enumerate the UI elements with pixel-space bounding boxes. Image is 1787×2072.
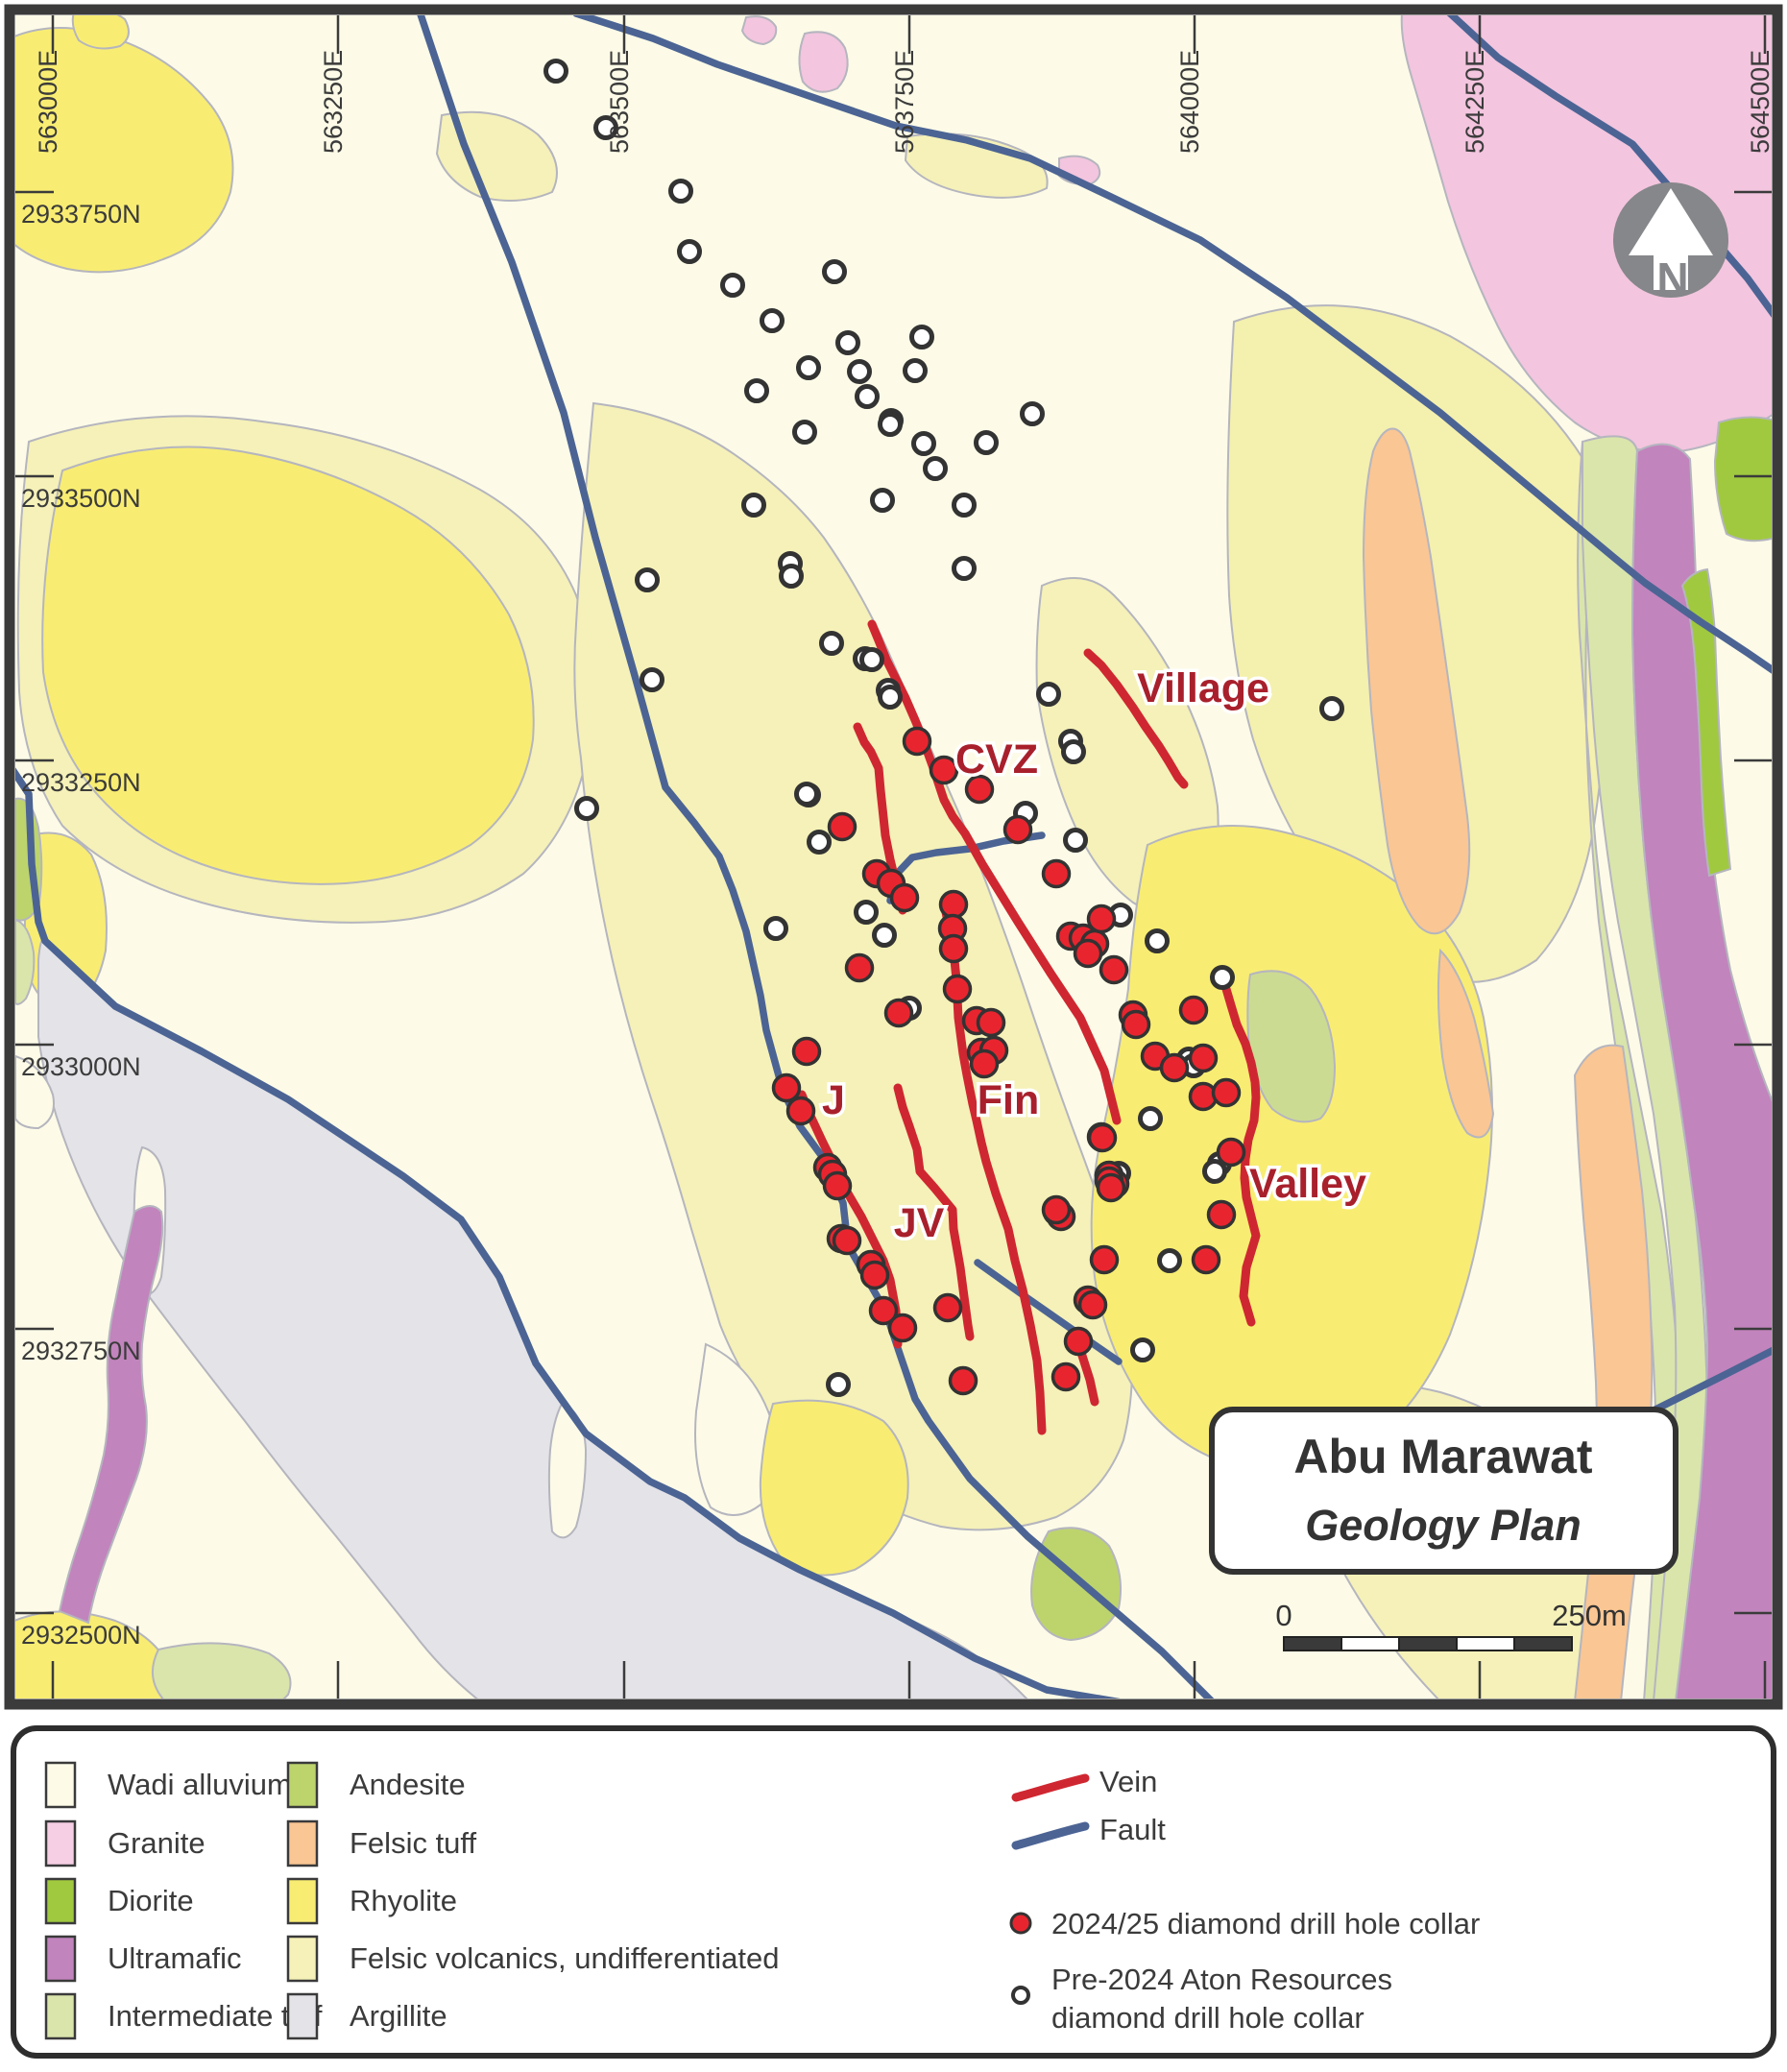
easting-label: 564250E [1461,50,1489,154]
drill-hole-2024 [1075,941,1101,967]
geology-andesite [1031,1528,1121,1640]
drill-hole-2024 [825,1173,851,1199]
drill-hole-2024 [1089,906,1115,932]
drill-hole-pre2024 [954,495,975,516]
drill-hole-2024 [1219,1140,1244,1166]
northing-label: 2933250N [21,768,141,797]
drill-hole-pre2024 [1064,742,1084,762]
legend-label: Felsic tuff [350,1826,476,1860]
legend: Wadi alluviumGraniteDioriteUltramaficInt… [13,1728,1774,2056]
scale-zero-label: 0 [1275,1599,1292,1632]
drill-hole-2024 [941,892,967,918]
legend-label: Pre-2024 Aton Resources [1051,1963,1392,1996]
drill-hole-2024 [1162,1055,1188,1081]
northing-label: 2933750N [21,200,141,229]
northing-label: 2933000N [21,1052,141,1081]
drill-hole-2024 [1044,1197,1070,1223]
drill-hole-2024 [1053,1364,1079,1390]
geology-plan-figure: VillageCVZJFinJVValley N 563000E563250E5… [0,0,1787,2067]
geology-diorite [1715,417,1775,541]
drill-hole-2024 [1209,1202,1235,1228]
drill-hole-pre2024 [1205,1162,1225,1182]
vein-label-j: J [822,1077,845,1123]
legend-swatch-argillite [288,1994,317,2038]
drill-hole-2024 [905,729,930,755]
drill-hole-pre2024 [1213,968,1233,988]
drill-hole-pre2024 [577,799,597,819]
drill-hole-pre2024 [850,362,870,382]
drill-hole-pre2024 [977,433,997,453]
legend-label: Wadi alluvium [108,1768,292,1801]
legend-label: Andesite [350,1768,466,1801]
drill-hole-pre2024 [954,559,975,579]
drill-hole-2024 [1123,1012,1149,1038]
legend-swatch-diorite [46,1879,75,1923]
drill-hole-pre2024 [642,670,663,690]
map-subtitle: Geology Plan [1305,1501,1582,1550]
drill-hole-pre2024 [1133,1340,1153,1361]
easting-label: 564000E [1175,50,1204,154]
northing-label: 2933500N [21,484,141,513]
legend-swatch-wadi-alluvium [46,1763,75,1807]
easting-label: 563750E [890,50,919,154]
legend-drill-pre2024-sample [1013,1988,1028,2003]
drill-hole-pre2024 [906,361,926,381]
legend-label: Vein [1099,1765,1157,1798]
geology-granite [799,32,847,91]
drill-hole-pre2024 [638,570,658,590]
drill-hole-pre2024 [809,832,830,853]
drill-hole-pre2024 [1147,931,1168,952]
drill-hole-2024 [847,955,873,981]
legend-label: Felsic volcanics, undifferentiated [350,1941,779,1975]
drill-hole-pre2024 [1160,1251,1180,1271]
drill-hole-2024 [788,1098,814,1124]
legend-label: Fault [1099,1813,1166,1846]
drill-hole-pre2024 [1141,1109,1161,1129]
drill-hole-2024 [830,814,856,840]
north-arrow-label: N [1656,253,1688,303]
legend-label: Rhyolite [350,1884,457,1917]
drill-hole-2024 [892,885,918,911]
drill-hole-pre2024 [799,358,819,378]
drill-hole-pre2024 [838,333,858,353]
drill-hole-2024 [941,936,967,962]
drill-hole-pre2024 [1066,831,1086,851]
drill-hole-pre2024 [857,903,877,923]
drill-hole-pre2024 [857,387,878,407]
northing-label: 2932500N [21,1621,141,1650]
drill-hole-pre2024 [914,434,934,454]
legend-label: Argillite [350,1999,447,2033]
legend-swatch-ultramafic [46,1937,75,1981]
drill-hole-pre2024 [912,327,932,348]
drill-hole-pre2024 [829,1375,849,1395]
drill-hole-pre2024 [782,566,802,587]
drill-hole-2024 [794,1039,820,1065]
drill-hole-pre2024 [546,61,567,82]
legend-swatch-felsic-tuff [288,1821,317,1866]
title-box: Abu Marawat Geology Plan [1212,1409,1676,1572]
drill-hole-2024 [1080,1292,1106,1318]
legend-label: diamond drill hole collar [1051,2001,1364,2035]
drill-hole-2024 [1194,1247,1220,1273]
drill-hole-2024 [1090,1125,1116,1151]
drill-hole-pre2024 [762,311,783,331]
drill-hole-2024 [951,1368,977,1394]
drill-hole-2024 [935,1295,961,1321]
drill-hole-pre2024 [680,242,700,262]
drill-hole-2024 [862,1263,888,1289]
drill-hole-pre2024 [822,634,842,654]
legend-drill-2024-sample [1011,1914,1030,1933]
legend-label: 2024/25 diamond drill hole collar [1051,1907,1480,1940]
drill-hole-2024 [945,976,971,1002]
drill-hole-pre2024 [881,415,901,435]
map-canvas: VillageCVZJFinJVValley N 563000E563250E5… [0,0,1787,2067]
drill-hole-pre2024 [747,381,767,401]
scale-max-label: 250m [1552,1599,1627,1632]
drill-hole-2024 [1181,998,1207,1024]
drill-hole-2024 [978,1010,1004,1036]
drill-hole-2024 [1214,1080,1240,1106]
vein-label-fin: Fin [978,1077,1039,1123]
legend-swatch-felsic-volcanics-undifferentiated [288,1937,317,1981]
drill-hole-pre2024 [1039,685,1059,705]
drill-hole-pre2024 [881,687,901,708]
vein-label-valley: Valley [1249,1161,1366,1207]
easting-label: 563500E [605,50,634,154]
drill-hole-pre2024 [875,926,895,946]
drill-hole-pre2024 [744,495,764,516]
drill-hole-2024 [886,1000,912,1026]
drill-hole-pre2024 [1322,699,1342,719]
drill-hole-2024 [972,1051,998,1077]
drill-hole-2024 [774,1075,800,1101]
drill-hole-pre2024 [926,459,946,479]
vein-label-village: Village [1137,665,1269,711]
legend-label: Ultramafic [108,1941,242,1975]
easting-label: 563000E [34,50,62,154]
legend-swatch-intermediate-tuff [46,1994,75,2038]
drill-hole-pre2024 [797,784,817,805]
easting-label: 564500E [1746,50,1775,154]
drill-hole-pre2024 [723,276,743,296]
drill-hole-2024 [931,758,957,783]
drill-hole-pre2024 [862,650,882,670]
legend-label: Diorite [108,1884,194,1917]
northing-label: 2932750N [21,1337,141,1365]
drill-hole-2024 [890,1315,916,1341]
vein-label-jv: JV [894,1200,945,1246]
drill-hole-2024 [1101,957,1127,983]
map-title: Abu Marawat [1293,1430,1593,1483]
drill-hole-2024 [834,1228,860,1254]
legend-swatch-granite [46,1821,75,1866]
legend-swatch-rhyolite [288,1879,317,1923]
drill-hole-pre2024 [795,422,815,443]
drill-hole-2024 [1099,1175,1124,1201]
drill-hole-pre2024 [873,491,893,511]
drill-hole-pre2024 [766,919,786,939]
drill-hole-2024 [1044,861,1070,887]
drill-hole-pre2024 [671,181,691,202]
drill-hole-2024 [1066,1329,1092,1355]
legend-label: Granite [108,1826,205,1860]
easting-label: 563250E [319,50,348,154]
drill-hole-pre2024 [825,262,845,282]
drill-hole-2024 [1005,817,1031,843]
vein-label-cvz: CVZ [955,736,1038,783]
drill-hole-pre2024 [1023,404,1043,424]
drill-hole-2024 [1191,1046,1217,1072]
drill-hole-2024 [1092,1247,1118,1273]
legend-swatch-andesite [288,1763,317,1807]
